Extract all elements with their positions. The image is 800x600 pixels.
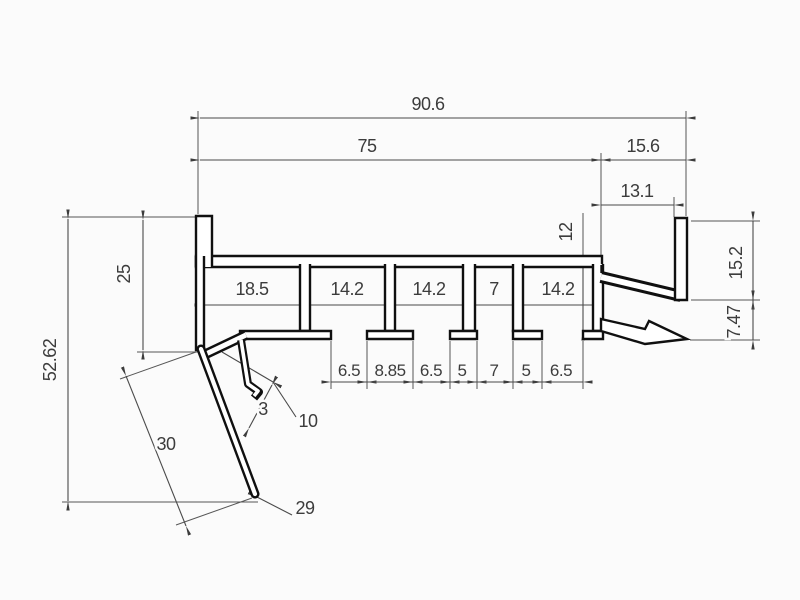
dim-hook-length: 10	[298, 411, 318, 431]
profile-top-plate	[196, 256, 602, 267]
dim-bar-offset: 13.1	[620, 181, 654, 201]
profile-left-wall	[196, 256, 204, 350]
dim-foot1: 8.85	[374, 361, 405, 380]
dim-left-depth: 25	[114, 264, 134, 284]
dim-foot2: 5	[458, 361, 467, 380]
dim-leg-outer: 30	[156, 434, 176, 454]
profile-right-bar	[675, 218, 687, 300]
dim-foot3: 5	[522, 361, 531, 380]
dim-slot3: 7	[490, 361, 499, 380]
profile-barb	[601, 319, 687, 344]
profile-drawing: 90.6 75 15.6 13.1 52.62 25 12 15.2 7.47 …	[0, 0, 800, 600]
profile-foot	[450, 331, 477, 339]
dim-overall-width: 90.6	[411, 94, 445, 114]
dim-ch3: 14.2	[412, 279, 446, 299]
profile-foot	[583, 331, 603, 339]
dim-ch2: 14.2	[330, 279, 364, 299]
dim-slot2: 6.5	[420, 361, 442, 380]
dim-hook-gap: 3	[258, 399, 268, 419]
profile-outline	[196, 216, 687, 494]
dim-ch1: 18.5	[235, 279, 269, 299]
dim-right-upper: 15.6	[626, 136, 660, 156]
dim-slot1: 6.5	[338, 361, 360, 380]
profile-slab	[240, 331, 331, 339]
profile-foot	[513, 331, 542, 339]
profile-wall	[385, 264, 395, 331]
dim-channel-height: 12	[556, 222, 576, 242]
dim-total-height: 52.62	[40, 338, 60, 381]
profile-foot	[367, 331, 413, 339]
dim-leg-inner: 29	[295, 498, 315, 518]
dim-ch4: 7	[489, 279, 499, 299]
profile-wall	[463, 264, 475, 331]
dim-slot4: 6.5	[550, 361, 572, 380]
dim-right-height: 15.2	[726, 246, 746, 280]
profile-wall	[513, 264, 523, 331]
drawing-canvas: 90.6 75 15.6 13.1 52.62 25 12 15.2 7.47 …	[0, 0, 800, 600]
dim-upper-width: 75	[357, 136, 377, 156]
dim-ch5: 14.2	[541, 279, 575, 299]
dim-right-drop: 7.47	[724, 305, 744, 339]
extension-lines	[62, 111, 760, 525]
profile-wall	[300, 264, 310, 331]
